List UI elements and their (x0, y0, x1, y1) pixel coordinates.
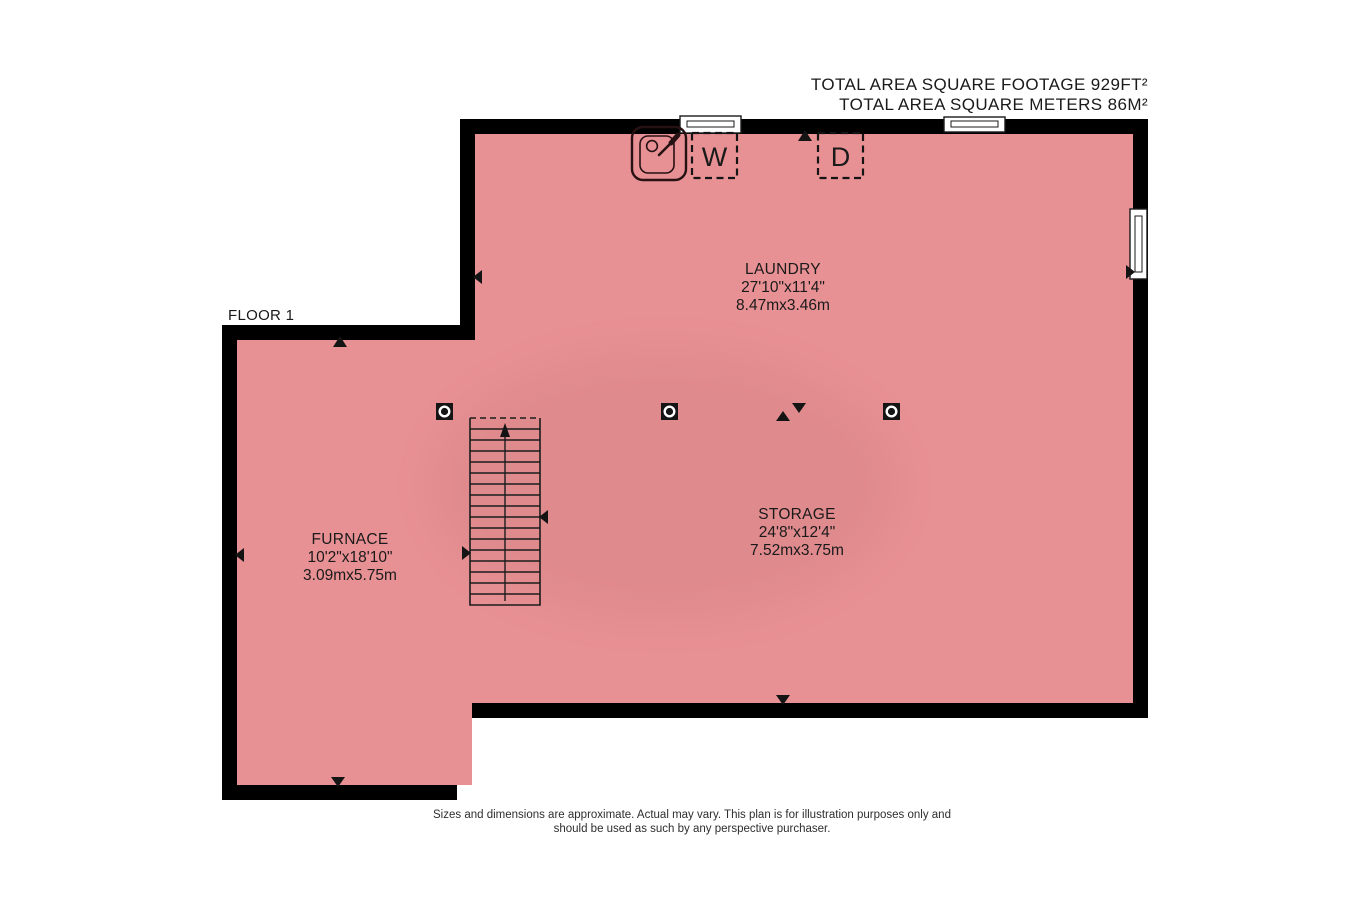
floor-plan-page: W D TOTAL AREA SQUARE FOOTAGE 929FT² TOT… (0, 0, 1360, 921)
total-area-footage: TOTAL AREA SQUARE FOOTAGE 929FT² (811, 75, 1148, 94)
total-area-meters: TOTAL AREA SQUARE METERS 86M² (839, 95, 1148, 114)
floor-shading (430, 350, 900, 620)
washer-label: W (702, 142, 728, 172)
disclaimer-line-1: Sizes and dimensions are approximate. Ac… (433, 809, 951, 821)
room-dim-metric: 8.47mx3.46m (736, 297, 830, 314)
room-name: STORAGE (758, 506, 836, 523)
room-name: FURNACE (311, 531, 388, 548)
column-icon (661, 403, 678, 420)
room-name: LAUNDRY (745, 261, 821, 278)
room-label-furnace: FURNACE 10'2"x18'10" 3.09mx5.75m (303, 531, 397, 584)
room-dim-imperial: 24'8"x12'4" (759, 524, 835, 541)
window-top-right (944, 117, 1005, 132)
floor-plan-canvas: W D TOTAL AREA SQUARE FOOTAGE 929FT² TOT… (0, 0, 1360, 921)
floor-label: FLOOR 1 (228, 307, 294, 324)
room-label-storage: STORAGE 24'8"x12'4" 7.52mx3.75m (750, 506, 844, 559)
room-dim-metric: 3.09mx5.75m (303, 567, 397, 584)
room-label-laundry: LAUNDRY 27'10"x11'4" 8.47mx3.46m (736, 261, 830, 314)
window-top-left (680, 116, 741, 133)
window-right-wall (1130, 209, 1147, 279)
column-icon (436, 403, 453, 420)
disclaimer-line-2: should be used as such by any perspectiv… (554, 823, 831, 835)
room-dim-metric: 7.52mx3.75m (750, 542, 844, 559)
column-icon (883, 403, 900, 420)
room-dim-imperial: 27'10"x11'4" (741, 279, 825, 296)
dryer-label: D (831, 142, 851, 172)
room-dim-imperial: 10'2"x18'10" (307, 549, 392, 566)
